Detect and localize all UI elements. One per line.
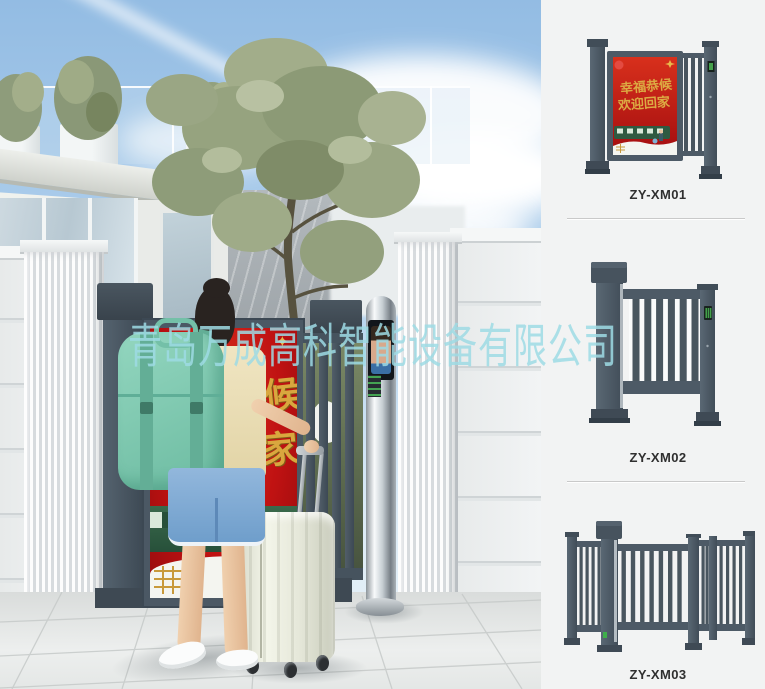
- gate-bars-section: [681, 53, 705, 156]
- woman-hand: [304, 440, 319, 453]
- product-showcase: ✦ 幸福恭候 欢迎回家: [0, 0, 765, 689]
- gate-left-post: [585, 39, 610, 174]
- train-person: [659, 133, 663, 141]
- intercom-keypad: [366, 372, 383, 400]
- product-item-zy-xm01: 幸福恭候 欢迎回家: [541, 0, 765, 218]
- suitcase-wheel: [284, 662, 297, 678]
- product-item-zy-xm03: ZY-XM03: [541, 482, 765, 689]
- gate-bar: [345, 343, 354, 573]
- fence-right-section: [685, 531, 755, 650]
- product-image-zy-xm01: 幸福恭候 欢迎回家: [585, 34, 727, 182]
- right-wall: [452, 241, 541, 606]
- woman-leg: [221, 536, 248, 659]
- fence-gate-leaf: [618, 544, 688, 630]
- suitcase-wheel: [316, 655, 329, 671]
- right-fluted-column: [398, 242, 458, 608]
- woman-hair-bun: [203, 278, 230, 298]
- poster-lantern: [615, 61, 624, 70]
- fence-left-section: [564, 532, 602, 645]
- product-label: ZY-XM01: [546, 187, 765, 202]
- gate-leaf: [623, 289, 711, 394]
- gate-motor-box: [97, 283, 153, 320]
- wall-grooves: [452, 241, 541, 606]
- gate-ad-frame: 幸福恭候 欢迎回家: [607, 51, 683, 161]
- backpack-flap-seam: [118, 394, 224, 397]
- pillar-base: [356, 598, 404, 616]
- right-wall-cap: [450, 228, 541, 243]
- backpack-buckle: [140, 402, 153, 414]
- left-fluted-column: [24, 252, 104, 624]
- product-label: ZY-XM02: [546, 450, 765, 465]
- gate-motor-box: [591, 262, 627, 283]
- shorts-seam: [215, 498, 218, 542]
- woman-shorts: [168, 468, 265, 546]
- gate-right-post: [699, 41, 722, 179]
- product-image-zy-xm03: [563, 520, 755, 656]
- product-label: ZY-XM03: [546, 667, 765, 682]
- backpack-buckle: [190, 402, 203, 414]
- train-person-head: [659, 130, 663, 134]
- train-bag: [653, 139, 658, 144]
- company-watermark: 青岛万成高科智能设备有限公司: [128, 324, 618, 371]
